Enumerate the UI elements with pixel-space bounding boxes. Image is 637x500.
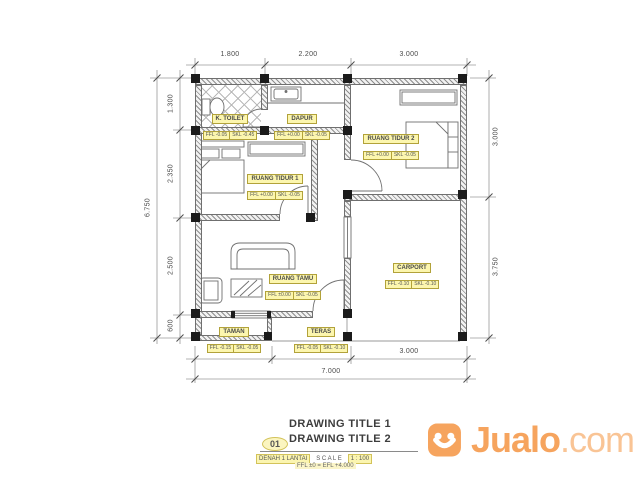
level-note: FFL ±0 = EFL +4.000 <box>295 463 356 469</box>
title-underline <box>260 451 418 452</box>
room-name: RUANG TIDUR 2 <box>363 134 418 144</box>
coffee-table-icon <box>231 279 262 297</box>
column-marker <box>191 309 200 318</box>
jualo-smiley-icon <box>428 414 461 466</box>
jualo-brand-text: Jualo <box>471 419 560 460</box>
dim-bottom-3: 3.000 <box>384 348 434 355</box>
wall-segment <box>351 194 460 201</box>
room-levels: FFL -0.10SKL -0.10 <box>385 280 440 289</box>
column-marker <box>306 213 315 222</box>
dim-top-1: 1.800 <box>205 51 255 58</box>
room-label-taman: TAMAN FFL -0.15SKL -0.05 <box>206 321 262 353</box>
carport-window <box>344 217 351 258</box>
window-post <box>231 311 235 318</box>
column-marker <box>191 213 200 222</box>
room-label-toilet: K. TOILET FFL -0.05SKL -0.45 <box>198 108 262 140</box>
room-levels: FFL -0.05SKL -0.10 <box>294 344 349 353</box>
window-post <box>267 311 271 318</box>
kitchen-counter-icon <box>268 87 344 103</box>
wall-segment <box>311 134 318 221</box>
wardrobe-icon <box>400 90 457 105</box>
dim-left-total: 6.750 <box>145 186 152 230</box>
dim-top-2: 2.200 <box>283 51 333 58</box>
jualo-tld-text: .com <box>560 419 634 460</box>
room-levels: FFL +0.00SKL -0.05 <box>363 151 419 160</box>
room-label-tidur1: RUANG TIDUR 1 FFL +0.00SKL -0.05 <box>240 168 310 200</box>
room-levels: FFL -0.15SKL -0.05 <box>207 344 262 353</box>
wall-segment <box>344 85 351 160</box>
wall-segment <box>344 258 351 311</box>
column-marker <box>458 332 467 341</box>
dim-bottom-total: 7.000 <box>306 368 356 375</box>
sofa-icon <box>231 243 295 269</box>
room-name: CARPORT <box>393 263 431 273</box>
column-marker <box>458 74 467 83</box>
wall-segment <box>270 311 313 318</box>
column-marker <box>343 190 352 199</box>
room-label-carport: CARPORT FFL -0.10SKL -0.10 <box>382 257 442 289</box>
room-name: RUANG TIDUR 1 <box>247 174 302 184</box>
room-label-teras: TERAS FFL -0.05SKL -0.10 <box>293 321 349 353</box>
room-name: K. TOILET <box>212 114 249 124</box>
room-name: RUANG TAMU <box>269 274 318 284</box>
floor-plan-drawing: 1.800 2.200 3.000 1.300 2.350 2.500 600 … <box>0 0 637 500</box>
wardrobe-icon <box>248 142 305 156</box>
column-marker <box>191 74 200 83</box>
room-name: TERAS <box>307 327 335 337</box>
sheet-number: 01 <box>262 437 288 451</box>
dim-right-2: 3.750 <box>493 245 500 289</box>
room-levels: FFL ±0.00SKL -0.05 <box>265 291 321 300</box>
wall-segment <box>195 78 467 85</box>
bed-icon <box>198 141 244 193</box>
jualo-watermark: Jualo.com <box>428 410 634 470</box>
room-levels: FFL +0.00SKL -0.05 <box>247 191 303 200</box>
wall-segment <box>195 311 232 318</box>
dim-top-3: 3.000 <box>384 51 434 58</box>
room-label-tidur2: RUANG TIDUR 2 FFL +0.00SKL -0.05 <box>356 128 426 160</box>
wall-segment <box>261 85 268 110</box>
jualo-wordmark: Jualo.com <box>471 414 634 466</box>
room-name: TAMAN <box>219 327 248 337</box>
column-marker <box>260 74 269 83</box>
dim-right-1: 3.000 <box>493 115 500 159</box>
dim-left-1: 1.300 <box>168 82 175 126</box>
bedroom2-door <box>351 160 382 191</box>
living-window <box>232 311 270 318</box>
column-marker <box>264 332 272 340</box>
dim-left-3: 2.500 <box>168 244 175 288</box>
column-marker <box>343 126 352 135</box>
column-marker <box>343 309 352 318</box>
wall-segment <box>195 214 280 221</box>
drawing-title-1: DRAWING TITLE 1 <box>250 418 430 430</box>
scale-label: S C A L E <box>316 456 341 462</box>
room-label-tamu: RUANG TAMU FFL ±0.00SKL -0.05 <box>262 268 324 300</box>
wall-segment <box>344 201 351 217</box>
wall-segment <box>460 85 467 335</box>
room-levels: FFL +0.00SKL -0.05 <box>274 131 330 140</box>
room-name: DAPUR <box>287 114 316 124</box>
dim-left-4: 600 <box>168 304 175 348</box>
dim-left-2: 2.350 <box>168 152 175 196</box>
column-marker <box>343 74 352 83</box>
room-levels: FFL -0.05SKL -0.45 <box>203 131 258 140</box>
column-marker <box>458 190 467 199</box>
column-marker <box>191 332 200 341</box>
room-label-dapur: DAPUR FFL +0.00SKL -0.05 <box>272 108 332 140</box>
